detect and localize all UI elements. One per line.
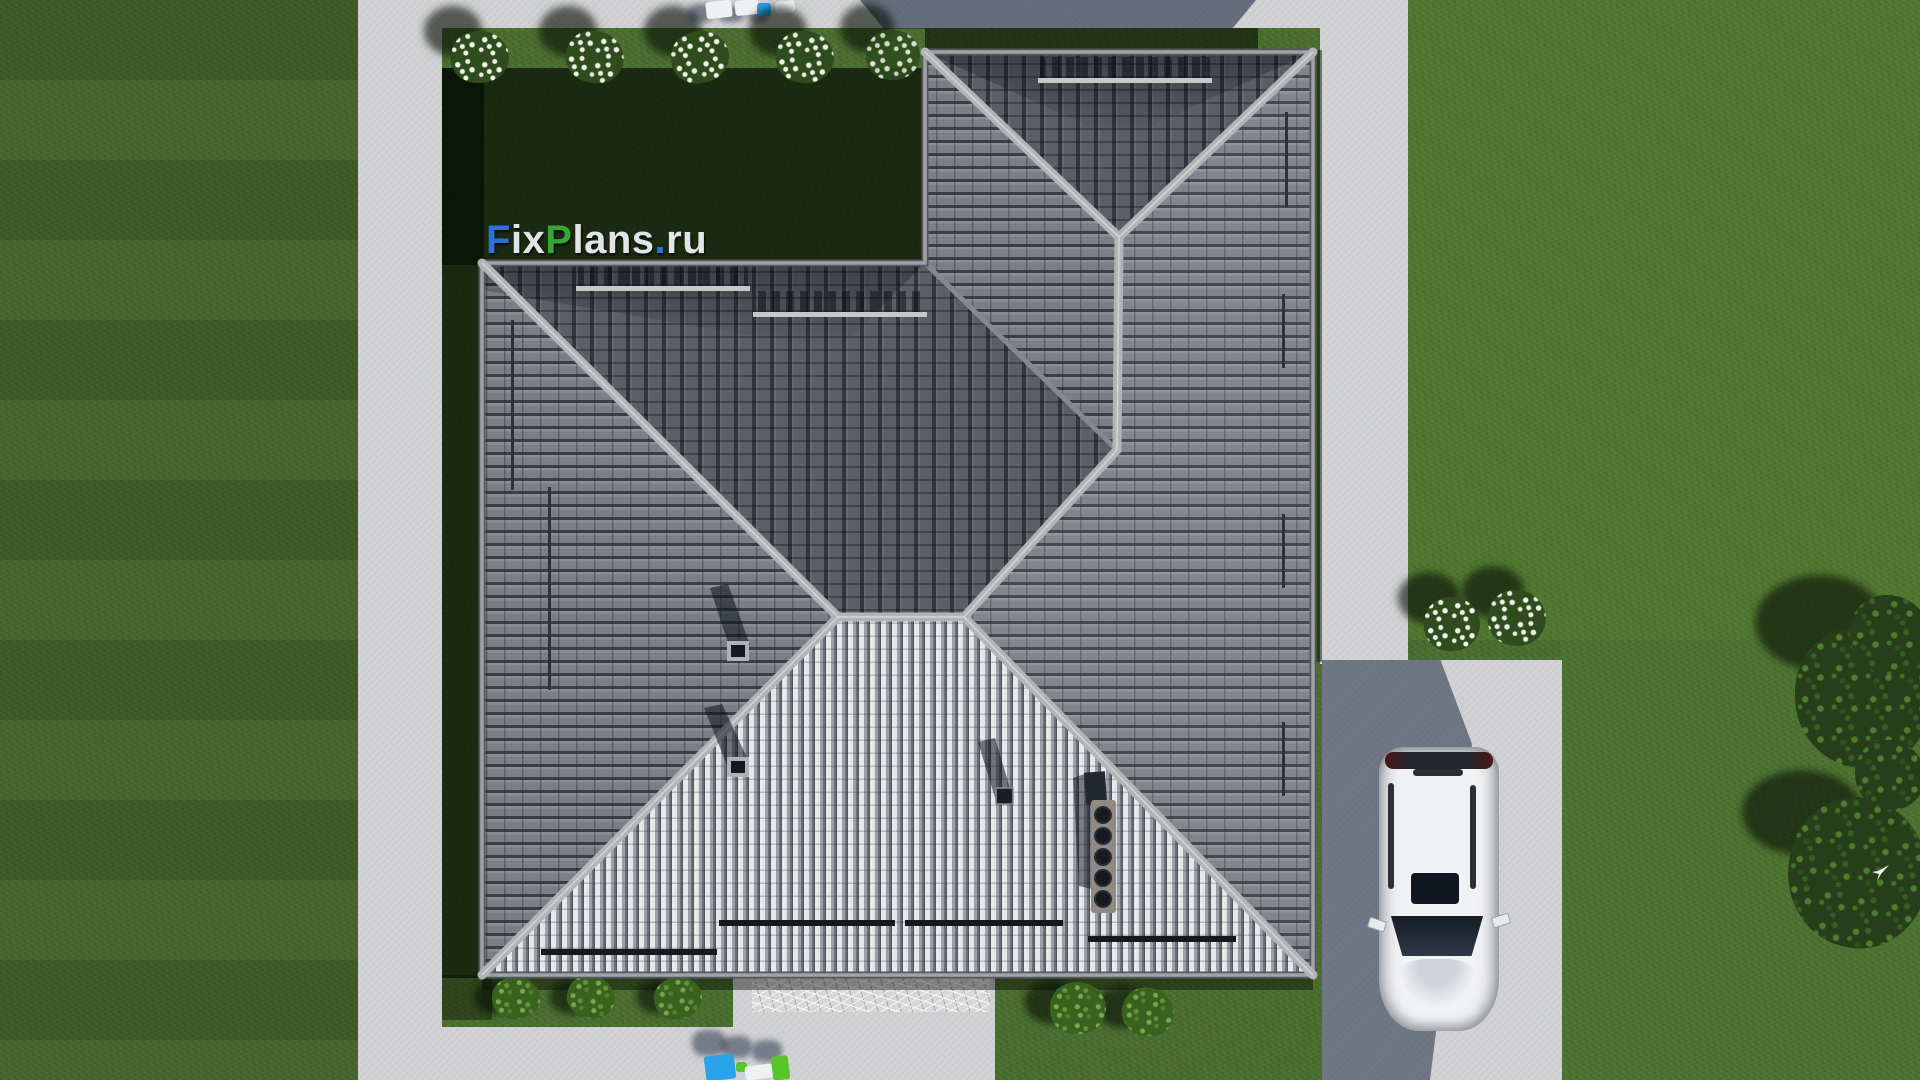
watermark: FixPlans.ru xyxy=(486,220,707,260)
car-taillights xyxy=(1385,752,1493,769)
watermark-segment: . xyxy=(655,218,667,262)
watermark-segment: lans xyxy=(572,218,654,262)
car-roof-rail-left xyxy=(1388,783,1394,889)
tree xyxy=(1855,740,1920,810)
snow-rail-vertical xyxy=(511,320,514,490)
snow-rail-vertical xyxy=(1285,112,1288,207)
roof xyxy=(0,0,1920,1080)
car-windshield xyxy=(1389,916,1485,956)
tile-shadow-streaks xyxy=(578,264,748,286)
vent-pipe-top xyxy=(1084,771,1107,804)
tile-shadow-streaks xyxy=(755,291,925,312)
flying-bird xyxy=(1872,865,1890,882)
chimney-flue xyxy=(731,761,745,773)
snow-rail-vertical xyxy=(1282,514,1285,588)
snow-rail xyxy=(576,286,750,291)
watermark-segment: ix xyxy=(511,218,545,262)
snow-rail-dark xyxy=(1088,936,1236,942)
snow-rail-vertical xyxy=(1282,294,1285,368)
chimney-flue xyxy=(731,645,745,657)
watermark-segment: ru xyxy=(666,218,707,262)
car-sunroof xyxy=(1411,873,1459,904)
car-rear-window xyxy=(1413,769,1463,776)
snow-rail xyxy=(753,312,927,317)
vent-pipe xyxy=(1095,807,1111,823)
watermark-segment: F xyxy=(486,218,511,262)
car xyxy=(1377,745,1501,1033)
vent-pipe xyxy=(1095,828,1111,844)
snow-rail-dark xyxy=(719,920,895,926)
snow-rail xyxy=(1038,78,1212,83)
vent-pipe xyxy=(1095,891,1111,907)
car-roof-rail-right xyxy=(1470,785,1476,889)
snow-rail-dark xyxy=(905,920,1063,926)
chimney-small xyxy=(996,788,1013,804)
watermark-segment: P xyxy=(545,218,572,262)
vent-pipe xyxy=(1095,870,1111,886)
car-hood xyxy=(1393,959,1481,1013)
aerial-render-scene: FixPlans.ru xyxy=(0,0,1920,1080)
snow-rail-vertical xyxy=(1282,722,1285,796)
tile-shadow-streaks xyxy=(1040,57,1210,78)
snow-rail-dark xyxy=(541,949,717,955)
snow-rail-vertical xyxy=(548,487,551,690)
vent-pipe xyxy=(1095,849,1111,865)
